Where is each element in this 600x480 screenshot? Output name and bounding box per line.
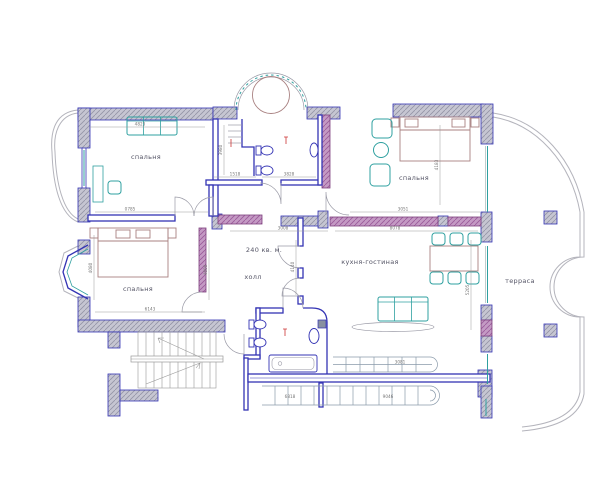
room-label-bedroom-left: спальня: [123, 285, 153, 293]
bidet: [254, 338, 266, 347]
dining-chair: [430, 272, 443, 284]
area-label: 240 кв. м.: [246, 246, 282, 254]
bidet: [261, 166, 273, 175]
sink: [310, 143, 318, 157]
floorplan-canvas: 4823 0785 3980 1518 3828 4183 3051 3008 …: [0, 0, 600, 480]
dimension-label: 6143: [145, 307, 156, 312]
room-label-bedroom-top-left: спальня: [131, 153, 161, 161]
toilet: [254, 320, 266, 329]
bed-bedroom2: [400, 117, 470, 161]
valve-mark: [283, 329, 287, 336]
sink: [309, 329, 319, 344]
dimension-label: 3828: [284, 172, 295, 177]
wall-top-bedroom2: [393, 104, 483, 117]
dimension-label: 4183: [434, 159, 439, 170]
wall-top-bedroom1: [78, 108, 213, 120]
console-table: [352, 323, 434, 332]
dimension-label: 6818: [285, 394, 296, 399]
room-label-hall: холл: [244, 273, 261, 281]
dimension-label: 3081: [395, 360, 406, 365]
room-label-kitchen-living: кухня-гостиная: [341, 258, 398, 266]
dimension-label: 4080: [88, 262, 93, 273]
dining-chair: [466, 272, 479, 284]
staircase: [131, 332, 223, 388]
room-label-terrace: терраса: [505, 277, 535, 285]
purple-walls: [199, 115, 492, 336]
floorplan-svg: 4823 0785 3980 1518 3828 4183 3051 3008 …: [0, 0, 600, 480]
terrace-column: [544, 211, 557, 224]
terrace-column: [544, 324, 557, 337]
armchair-bedroom2: [370, 164, 390, 186]
dimension-label: 5205: [465, 284, 470, 295]
dimension-label: 1518: [230, 172, 241, 177]
armchair-bedroom2: [372, 119, 392, 138]
dimension-label: 3051: [398, 207, 409, 212]
shaft: [318, 320, 326, 328]
dimension-label: 0785: [125, 207, 136, 212]
sofa-kitchen: [378, 297, 428, 321]
toilet: [261, 146, 273, 155]
room-label-bedroom-top-right: спальня: [399, 174, 429, 182]
valve-mark: [284, 137, 288, 144]
turret-round-table: [253, 77, 290, 114]
dimension-label: 4140: [290, 261, 295, 272]
dimension-label: 4823: [135, 122, 146, 127]
desk-bedroom1: [93, 166, 103, 202]
turret-bay: [234, 73, 308, 114]
dining-chair: [450, 233, 463, 245]
dining-chair: [468, 233, 481, 245]
side-table-bedroom2: [374, 143, 389, 158]
bed-bedroom3: [98, 228, 168, 277]
dining-chair: [448, 272, 461, 284]
chair-bedroom1: [108, 181, 121, 194]
bay-window-bedroom3: [67, 249, 88, 295]
wall-bottom-bedroom3: [78, 320, 225, 332]
dimension-label: 3008: [278, 226, 289, 231]
dimension-label: 3980: [218, 144, 223, 155]
dimension-label: 9046: [383, 394, 394, 399]
dimension-label: 4600: [203, 264, 208, 275]
dining-chair: [432, 233, 445, 245]
dimension-label: 8078: [390, 226, 401, 231]
